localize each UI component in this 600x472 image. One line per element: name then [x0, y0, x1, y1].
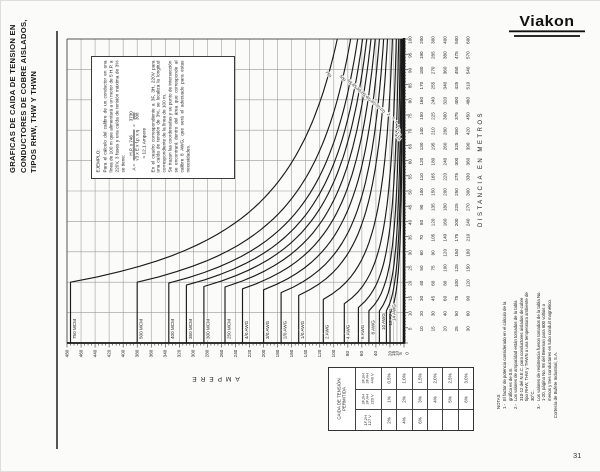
distance-scale-value: 60 [408, 159, 413, 165]
distance-scale-value: 150 [419, 112, 424, 120]
distance-scale-value: 20 [419, 311, 424, 317]
ampere-tick-label: 220 [247, 349, 252, 357]
distance-scale-value: 80 [408, 98, 413, 104]
distance-scale-value: 100 [442, 264, 447, 272]
distance-scale-value: 175 [454, 233, 459, 241]
drop-table-value [442, 409, 457, 430]
drop-table-value: 3.0% [458, 368, 473, 389]
example-result: = 12.1 Ampere [141, 61, 147, 159]
distance-scale-value: 270 [466, 203, 471, 211]
distance-scale-value: 20 [408, 280, 413, 286]
drop-table-value: 1.0% [396, 368, 411, 389]
distance-scale-value: 50 [408, 189, 413, 195]
distance-scale-value: 55 [408, 174, 413, 180]
distance-scale-value: 75 [408, 113, 413, 119]
ampere-tick-label: 100 [331, 349, 336, 357]
courtesy-line: Cortesía de Bufete Industrial, S.A. [553, 337, 561, 433]
drop-table-system: 3F,3H3F,4H220 V [355, 389, 381, 410]
distance-scale-value: 125 [454, 264, 459, 272]
distance-scale-value: 165 [431, 173, 436, 181]
ampere-tick-label: 160 [289, 349, 294, 357]
curve-size-label: 2 AWG [325, 324, 330, 339]
distance-scale-value: 300 [454, 157, 459, 165]
example-box: EJEMPLO: Para el cálculo del calibre de … [96, 61, 229, 173]
distance-scale-value: 260 [442, 142, 447, 150]
drop-table-system: 1F,2H127 V [355, 409, 381, 430]
viakon-logo-bar [514, 35, 579, 37]
curve-size-label: 2/0 AWG [283, 320, 288, 339]
distance-scale-value: 30 [419, 295, 424, 301]
distance-scale-value: 240 [466, 218, 471, 226]
distance-scale-value: 60 [442, 295, 447, 301]
distance-scale-value: 15 [431, 326, 436, 332]
ampere-tick-label: 440 [92, 349, 97, 357]
note-item-2: 2.-Los valores de ampacidad están tomado… [513, 291, 535, 409]
curve-size-label: 750 MCM [72, 319, 77, 339]
note-item-3: 3.-Los valores de resistencia fueron tom… [536, 291, 553, 409]
drop-table-value: 1% [381, 389, 396, 410]
ampere-tick-label: 0 [405, 352, 410, 355]
distance-scale-value: 390 [466, 142, 471, 150]
distance-scale-value: 90 [419, 204, 424, 210]
distance-scale-value: 320 [442, 97, 447, 105]
distance-scale-value: 200 [419, 36, 424, 44]
vertical-divider-rule [56, 31, 58, 449]
ampere-tick-label: 5 [398, 352, 403, 355]
drop-table-value: 2% [396, 389, 411, 410]
distance-scale-value: 225 [431, 112, 436, 120]
distance-scale-value: 135 [431, 203, 436, 211]
drop-table-value: 4% [396, 409, 411, 430]
distance-scale-value: 35 [408, 235, 413, 241]
distance-scale-value: 150 [454, 249, 459, 257]
formula-lhs: A = [132, 164, 138, 171]
distance-scale-value: 225 [454, 203, 459, 211]
distance-scale-value: 75 [454, 295, 459, 301]
ampere-tick-label: 40 [373, 351, 378, 357]
distance-scale-value: 480 [466, 97, 471, 105]
distance-scale-value: 270 [431, 66, 436, 74]
distance-scale-value: 120 [442, 249, 447, 257]
distance-scale-value: 180 [431, 157, 436, 165]
distance-scale-value: 210 [466, 233, 471, 241]
distance-scale-value: 475 [454, 51, 459, 59]
distance-scale-value: 380 [442, 51, 447, 59]
distance-scale-value: 60 [466, 311, 471, 317]
distance-scale-value: 60 [419, 250, 424, 256]
drop-table-value: 4% [427, 389, 442, 410]
distance-scale-value: 240 [442, 157, 447, 165]
drop-table-value: 1.5% [412, 368, 427, 389]
distance-scale-value: 90 [408, 67, 413, 73]
distance-scale-value: 195 [431, 142, 436, 150]
distance-scale-value: 100 [454, 279, 459, 287]
ampere-axis-title: AMPERE [174, 375, 254, 382]
drop-table-value: 2% [381, 409, 396, 430]
distance-scale-value: 15 [408, 295, 413, 301]
ampere-tick-label: 420 [106, 349, 111, 357]
distance-scale-value: 30 [431, 311, 436, 317]
distance-scale-value: 5 [408, 327, 413, 330]
curve-size-label: 400 MCM [170, 319, 175, 339]
drop-table-value: 3% [412, 389, 427, 410]
distance-scale-value: 140 [442, 233, 447, 241]
distance-scale-value: 325 [454, 142, 459, 150]
distance-scale-value: 600 [466, 36, 471, 44]
formula-fraction: H.P. x 746 √3 x E x f.p. x η [129, 130, 140, 161]
distance-scale-value: 170 [419, 81, 424, 89]
curve-inline-label: 500 [339, 74, 348, 83]
distance-axis-title: DISTANCIA EN METROS [478, 99, 488, 239]
distance-scale-value: 65 [408, 143, 413, 149]
distance-scale-value: 300 [442, 112, 447, 120]
ampere-tick-label: 460 [78, 349, 83, 357]
distance-scale-value: 510 [466, 81, 471, 89]
example-heading: EJEMPLO: [96, 61, 102, 173]
page-number: 31 [573, 451, 581, 460]
formula-eq-denominator: 308 [134, 112, 140, 120]
viakon-logo: Viakon [509, 14, 585, 37]
distance-scale-value: 350 [454, 127, 459, 135]
curve-size-label: 500 MCM [139, 319, 144, 339]
distance-scale-value: 110 [419, 173, 424, 181]
ampere-tick-label: 240 [233, 349, 238, 357]
scanned-chart-page: 4804604404204003803603403203002802602402… [0, 0, 600, 472]
ampere-tick-label: 360 [149, 349, 154, 357]
ampere-tick-label: 180 [275, 349, 280, 357]
distance-scale-value: 250 [454, 188, 459, 196]
distance-scale-value: 25 [408, 265, 413, 271]
drop-table-value: 2.0% [427, 368, 442, 389]
distance-scale-value: 220 [442, 173, 447, 181]
curve-size-label: 8 AWG [370, 320, 375, 335]
title-line-3: TIPOS RHW, THW Y THWN [29, 13, 40, 173]
distance-scale-value: 150 [466, 264, 471, 272]
distance-scale-value: 120 [431, 218, 436, 226]
distance-scale-value: 20 [442, 326, 447, 332]
distance-scale-value: 500 [454, 36, 459, 44]
distance-scale-value: 50 [454, 311, 459, 317]
distance-scale-value: 130 [419, 142, 424, 150]
drop-table-value [458, 409, 473, 430]
formula-equals: = [132, 124, 138, 127]
curve-size-label: 3/0 AWG [265, 320, 270, 339]
distance-scale-value: 40 [419, 280, 424, 286]
drop-table-value: 2.5% [442, 368, 457, 389]
distance-scale-value: 450 [466, 112, 471, 120]
distance-scale-value: 200 [442, 188, 447, 196]
distance-scale-value: 360 [466, 157, 471, 165]
curve-size-label: 6 AWG [360, 324, 365, 339]
ampere-tick-label: 280 [205, 349, 210, 357]
distance-scale-value: 280 [442, 127, 447, 135]
distance-scale-value: 105 [431, 233, 436, 241]
distance-scale-value: 160 [419, 97, 424, 105]
ampere-tick-label: 340 [163, 349, 168, 357]
notes-heading: NOTAS [496, 291, 502, 409]
drop-table-system: 3F,3H3F,4H440 V [355, 368, 381, 389]
distance-scale-value: 425 [454, 81, 459, 89]
ampere-tick-label: 480 [64, 349, 69, 357]
distance-scale-value: 420 [466, 127, 471, 135]
curve-inline-label: 750 [324, 70, 333, 79]
viakon-logo-text: Viakon [509, 15, 585, 32]
notes-block: NOTAS 1.-El factor de potencia considera… [496, 291, 540, 409]
distance-scale-value: 400 [454, 97, 459, 105]
ampere-tick-label: 80 [345, 351, 350, 357]
example-formula: A = H.P. x 746 √3 x E x f.p. x η = 3730 … [129, 61, 140, 171]
distance-scale-value: 450 [454, 66, 459, 74]
page-title: GRAFICAS DE CAIDA DE TENSION EN CONDUCTO… [8, 13, 54, 173]
distance-scale-value: 90 [431, 250, 436, 256]
curve-size-label: 300 MCM [205, 319, 210, 339]
distance-scale-value: 570 [466, 51, 471, 59]
curve-size-label: 1/0 AWG [300, 320, 305, 339]
ampere-tick-label: 200 [261, 349, 266, 357]
ampere-tick-label: 400 [120, 349, 125, 357]
distance-scale-value: 50 [419, 265, 424, 271]
formula-denominator: √3 x E x f.p. x η [134, 130, 140, 161]
distance-scale-value: 120 [419, 157, 424, 165]
curve-size-label: 250 MCM [226, 319, 231, 339]
distance-scale-value: 210 [431, 127, 436, 135]
distance-scale-value: 40 [408, 219, 413, 225]
distance-scale-value: 100 [408, 36, 413, 44]
distance-scale-value: 10 [408, 311, 413, 317]
distance-scale-value: 45 [408, 204, 413, 210]
distance-scale-value: 70 [419, 235, 424, 241]
distance-scale-value: 30 [408, 250, 413, 256]
distance-scale-value: 285 [431, 51, 436, 59]
distance-scale-value: 160 [442, 218, 447, 226]
note-item-1: 1.-El factor de potencia considerado en … [502, 291, 513, 409]
permitted-voltage-drop-table: CAIDA DE TENSIÓNPERMITIDA3F,3H3F,4H440 V… [328, 367, 474, 431]
distance-scale-value: 150 [431, 188, 436, 196]
distance-scale-value: 40 [442, 311, 447, 317]
drop-table-value: 0.5% [381, 368, 396, 389]
distance-scale-value: 60 [431, 280, 436, 286]
example-para1: Para el cálculo del calibre de un conduc… [102, 61, 126, 173]
distance-scale-value: 300 [466, 188, 471, 196]
distance-scale-value: 70 [408, 128, 413, 134]
ampere-tick-label: 380 [135, 349, 140, 357]
drop-table-value: 6% [412, 409, 427, 430]
curve-size-label: 14 AWG [391, 304, 396, 321]
curve-size-label: 4 AWG [346, 324, 351, 339]
curve-size-label: 4/0 AWG [244, 320, 249, 339]
distance-scale-value: 340 [442, 81, 447, 89]
ampere-tick-label: 300 [191, 349, 196, 357]
ampere-tick-label: 60 [359, 351, 364, 357]
ampere-tick-label: 320 [177, 349, 182, 357]
drop-table-value: 6% [458, 389, 473, 410]
title-line-1: GRAFICAS DE CAIDA DE TENSION EN [8, 13, 19, 173]
example-para2: En el cuadro correspondiente a 3F, 3H, 2… [150, 61, 168, 173]
drop-table-value: 5% [442, 389, 457, 410]
ampere-tick-label: 120 [317, 349, 322, 357]
distance-scale-value: 300 [431, 36, 436, 44]
curve-inline-label: 1/0 [379, 106, 387, 114]
distance-scale-value: 85 [408, 83, 413, 89]
distance-scale-value: 95 [408, 52, 413, 58]
distance-scale-value: 80 [419, 219, 424, 225]
distance-scale-value: 360 [442, 66, 447, 74]
distance-scale-value: 240 [431, 97, 436, 105]
distance-scale-value: 25 [454, 326, 459, 332]
distance-scale-value: 80 [442, 280, 447, 286]
distance-scale-value: 45 [431, 295, 436, 301]
drop-table-value [427, 409, 442, 430]
distance-scale-value: 100 [419, 188, 424, 196]
curve-size-label: 10 AWG [381, 313, 386, 330]
distance-scale-value: 75 [431, 265, 436, 271]
distance-scale-value: 30 [466, 326, 471, 332]
title-line-2: CONDUCTORES DE COBRE AISLADOS, [19, 13, 30, 173]
distance-scale-value: 275 [454, 173, 459, 181]
distance-scale-value: 400 [442, 36, 447, 44]
distance-scale-value: 90 [466, 295, 471, 301]
distance-scale-value: 200 [454, 218, 459, 226]
distance-scale-value: 375 [454, 112, 459, 120]
ampere-tick-label: 140 [303, 349, 308, 357]
distance-scale-value: 120 [466, 279, 471, 287]
distance-scale-value: 540 [466, 66, 471, 74]
distance-scale-value: 180 [419, 66, 424, 74]
formula-fraction-2: 3730 308 [129, 111, 140, 121]
distance-scale-value: 190 [419, 51, 424, 59]
distance-scale-value: 140 [419, 127, 424, 135]
example-para3: Se trazan las coordenadas y su punto de … [168, 61, 192, 173]
drop-table-header: CAIDA DE TENSIÓNPERMITIDA [329, 368, 355, 430]
distance-scale-value: 10 [419, 326, 424, 332]
distance-scale-value: 255 [431, 81, 436, 89]
distance-scale-value: 330 [466, 173, 471, 181]
distance-scale-value: 180 [466, 249, 471, 257]
distance-scale-value: 180 [442, 203, 447, 211]
ampere-tick-label: 260 [219, 349, 224, 357]
curve-size-label: 350 MCM [188, 319, 193, 339]
